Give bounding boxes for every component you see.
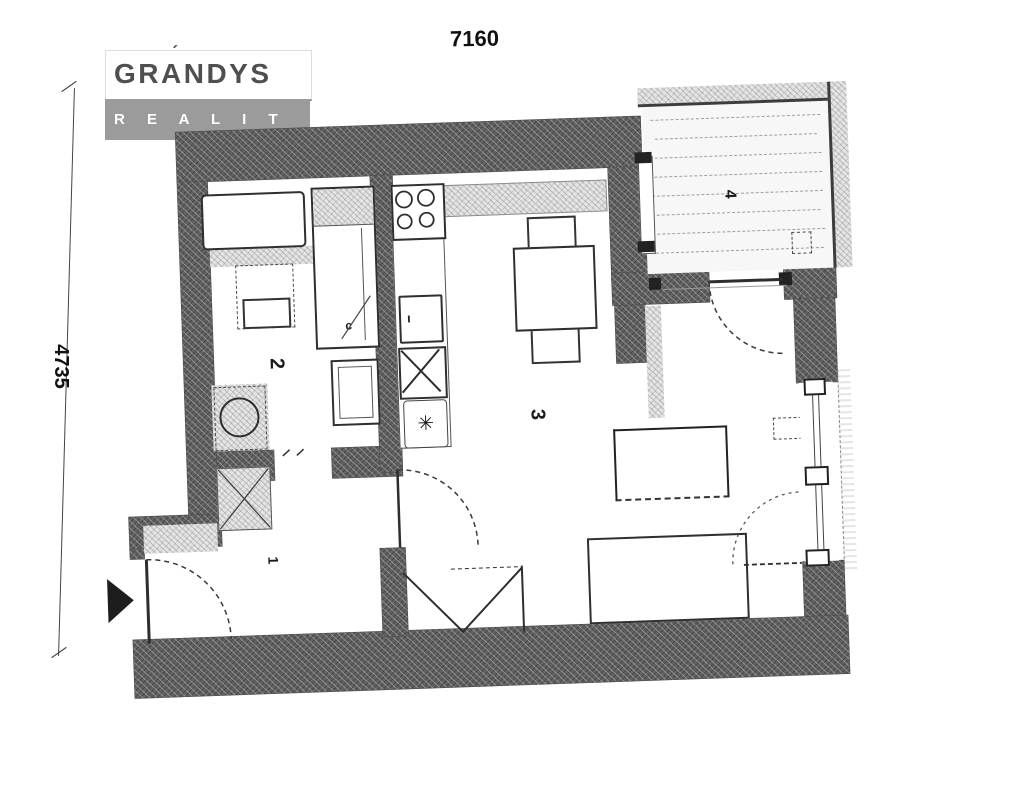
balcony-plank-line bbox=[654, 171, 822, 178]
fridge-cabinet-inner bbox=[338, 366, 374, 419]
balcony-door-jamb-block bbox=[649, 278, 661, 290]
balcony-plank-line bbox=[655, 133, 817, 140]
balcony-drain-box bbox=[791, 231, 812, 254]
wall-right-upper bbox=[794, 298, 838, 383]
room-label-living-kitchen: 3 bbox=[525, 409, 548, 421]
scanned-floorplan-page: { "logo": { "brand_top": "GRANDYS", "bra… bbox=[0, 0, 1024, 778]
wall-bottom bbox=[133, 615, 850, 698]
right-window-frame-middle bbox=[805, 466, 830, 486]
cooktop bbox=[390, 183, 446, 241]
wall-top bbox=[175, 116, 641, 182]
tall-cabinet-divider bbox=[361, 228, 366, 340]
tall-cabinet-mark: c bbox=[345, 318, 352, 332]
wall-right-lower bbox=[803, 560, 846, 618]
bathtub bbox=[201, 191, 307, 251]
floor-plan: 4 c 2 1 ι ✳ 3 bbox=[0, 0, 1024, 795]
wall-left-lower bbox=[130, 549, 144, 559]
wall-hall-partition-lower bbox=[380, 548, 408, 637]
right-window-exterior-sill bbox=[837, 369, 857, 569]
wall-stub bbox=[615, 304, 647, 363]
room-label-bathroom: 2 bbox=[264, 358, 287, 370]
right-window-frame-bottom bbox=[805, 549, 830, 567]
tall-cabinet-top-hatch bbox=[313, 188, 374, 227]
washing-machine-drum bbox=[242, 298, 291, 330]
room-label-hallway: 1 bbox=[265, 556, 281, 564]
sink-unit-symbol: ✳ bbox=[403, 399, 449, 449]
kitchen-counter-top bbox=[440, 179, 607, 217]
washbasin bbox=[213, 385, 267, 451]
entrance-arrow-icon bbox=[107, 578, 135, 623]
balcony-plank-line bbox=[657, 209, 821, 216]
bed bbox=[587, 533, 750, 625]
oven-mark: ι bbox=[407, 310, 411, 325]
balcony-door-hinge-block bbox=[779, 272, 792, 285]
room-label-balcony: 4 bbox=[720, 189, 738, 199]
balcony-window-frame-top bbox=[634, 152, 651, 164]
sideboard bbox=[613, 425, 729, 501]
tall-cabinet: c bbox=[310, 186, 380, 350]
kitchen-sink bbox=[398, 346, 448, 400]
oven: ι bbox=[398, 294, 444, 344]
dining-table bbox=[513, 245, 598, 332]
balcony-plank-line bbox=[650, 152, 822, 159]
fridge-cabinet bbox=[331, 359, 381, 427]
entry-niche-hatch bbox=[143, 523, 218, 554]
balcony-window-frame-bottom bbox=[638, 241, 655, 253]
balcony-plank-line bbox=[650, 114, 820, 121]
right-window-frame-top bbox=[803, 378, 826, 396]
hall-wardrobe bbox=[216, 466, 272, 531]
stub-hatch-strip bbox=[645, 306, 665, 418]
